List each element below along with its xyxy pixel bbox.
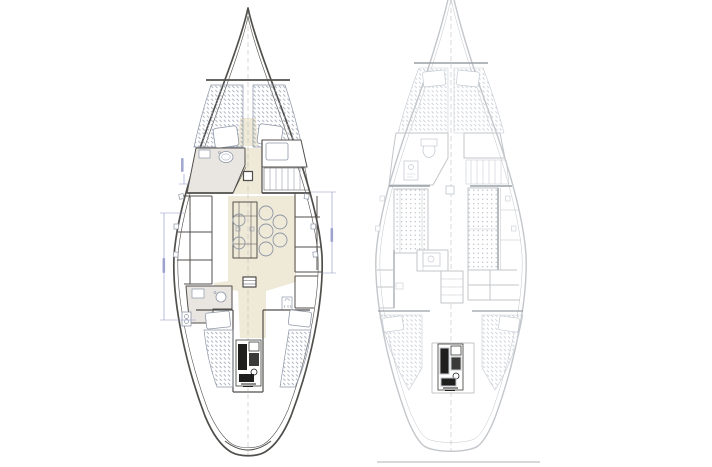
- drawing-page: [0, 0, 712, 467]
- portlights-starboard: [304, 194, 318, 258]
- portlight-icon: [173, 252, 178, 257]
- starboard-cabinet: [295, 276, 318, 308]
- engine-left: [236, 340, 261, 387]
- portlight-icon: [512, 226, 517, 231]
- portlight-icon: [174, 224, 179, 229]
- forward-berth-pillow: [266, 143, 288, 160]
- galley-sink: [216, 292, 226, 302]
- head-sink: [219, 152, 233, 163]
- forward-berth-slats: [270, 168, 300, 190]
- port-lockers: [377, 270, 394, 308]
- dimension-label-blur: [163, 258, 166, 273]
- portlight-icon: [311, 224, 316, 229]
- locker-icon: [396, 283, 403, 289]
- dressing-shelf: [464, 133, 505, 158]
- sole-galley-walkway: [238, 291, 266, 338]
- stove: [182, 312, 191, 326]
- aft-berth-pillow-port: [382, 316, 404, 333]
- head-compartment: [389, 133, 448, 185]
- port-dinette-settee: [394, 189, 428, 253]
- v-berth-pillow-port: [213, 125, 240, 148]
- mast-step: [446, 186, 454, 194]
- portlight-icon: [376, 226, 381, 231]
- starboard-lockers: [468, 270, 520, 300]
- galley-sink: [423, 253, 440, 266]
- companionway-steps: [243, 277, 256, 287]
- portlight-icon: [304, 194, 309, 200]
- aft-berth-pillow-starboard: [288, 310, 312, 328]
- dressing-seat-fan-lines: [471, 160, 501, 184]
- dimension-label-blur: [331, 228, 334, 242]
- aft-berth-pillow-starboard: [498, 316, 520, 333]
- engine-right: [438, 344, 463, 391]
- dimension-label-blur: [181, 158, 184, 172]
- galley-icebox: [192, 289, 204, 298]
- portlight-icon: [506, 196, 511, 201]
- toilet-cistern: [421, 139, 437, 146]
- head-cabinet: [199, 150, 210, 158]
- v-berth-pillow-port: [422, 70, 445, 87]
- boat-plans-canvas: [0, 0, 712, 467]
- forward-berth-slat-area: [264, 168, 309, 190]
- aft-berth-cushion-starboard: [280, 330, 311, 387]
- portlight-icon: [179, 194, 184, 200]
- aft-berth-pillow-port: [205, 311, 231, 329]
- portlight-icon: [313, 252, 318, 257]
- mast-step: [244, 172, 253, 181]
- v-berth-pillow-starboard: [456, 70, 479, 87]
- aft-berth-cushion-port: [204, 330, 233, 387]
- portlight-icon: [380, 196, 385, 201]
- left-plan: [160, 8, 336, 456]
- right-plan: [376, 0, 541, 462]
